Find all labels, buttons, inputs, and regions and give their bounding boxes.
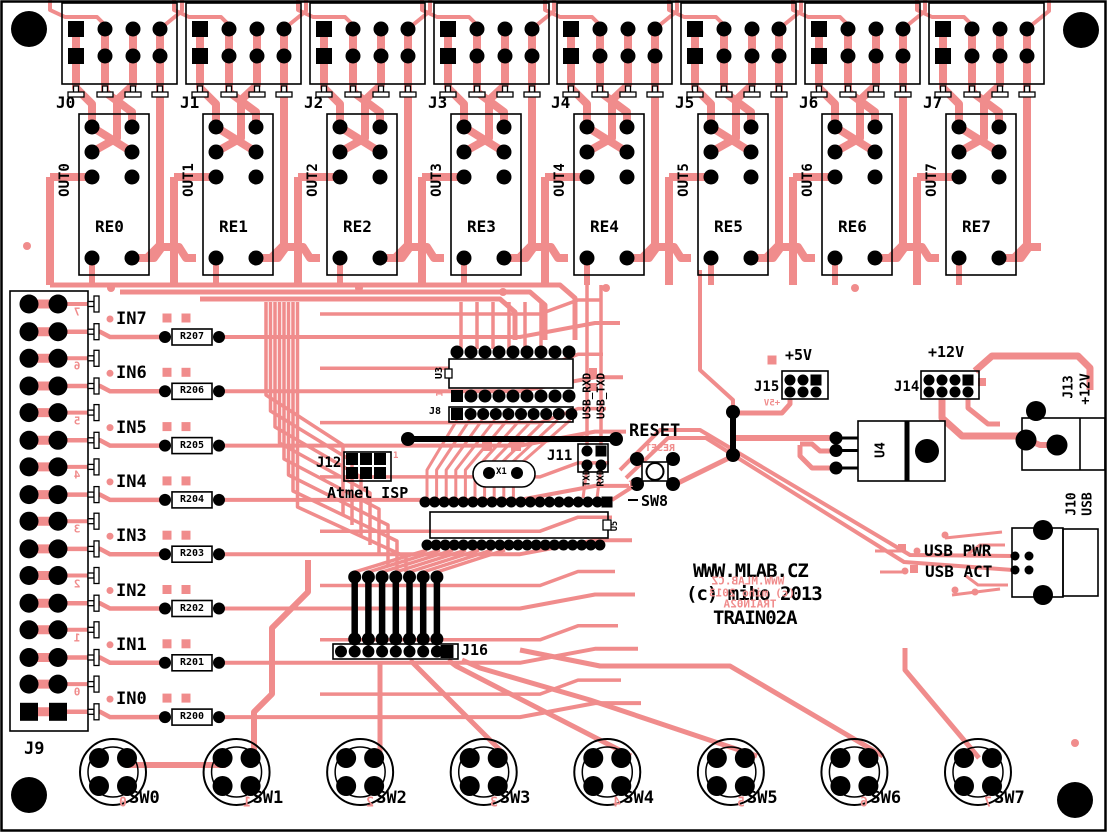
rxd-label: RXD bbox=[596, 469, 606, 486]
j14-label: J14 bbox=[894, 380, 919, 394]
j16-label: J16 bbox=[461, 643, 488, 658]
resistor-label-3: R204 bbox=[180, 495, 204, 505]
resistor-label-6: R201 bbox=[180, 658, 204, 668]
plus5v-label: +5V bbox=[785, 348, 812, 363]
switch-digit-1: 1 bbox=[243, 797, 251, 810]
pcb-board-train02a: J9 U3 1 J8 USB_RXD USB_TXD J11 TXD RXD X… bbox=[0, 0, 1107, 832]
input-label-0: IN7 bbox=[116, 311, 147, 328]
x1-label: X1 bbox=[496, 468, 507, 477]
input-label-3: IN4 bbox=[116, 474, 147, 491]
relay-label-re0: RE0 bbox=[95, 219, 124, 235]
switch-label-sw4: SW4 bbox=[623, 790, 654, 807]
usb-act-label: USB ACT bbox=[925, 564, 992, 580]
switch-digit-0: 0 bbox=[119, 797, 127, 810]
u3-label: U3 bbox=[435, 367, 445, 379]
input-label-2: IN5 bbox=[116, 420, 147, 437]
reset-pin1-marker: 1 bbox=[628, 481, 633, 490]
title-url-mirror: WWW.MLAB.CZ bbox=[712, 576, 785, 587]
u3-pin1-marker: 1 bbox=[437, 391, 446, 396]
j9-pin-digit-1: 6 bbox=[74, 361, 81, 372]
j11-label: J11 bbox=[547, 449, 572, 463]
j8-label: J8 bbox=[429, 407, 441, 417]
plus12v-label: +12V bbox=[928, 345, 964, 360]
switch-digit-7: 7 bbox=[984, 797, 992, 810]
connector-label-j6: J6 bbox=[799, 95, 818, 111]
switch-label-sw7: SW7 bbox=[994, 790, 1025, 807]
switch-digit-5: 5 bbox=[737, 797, 745, 810]
connector-label-j5: J5 bbox=[675, 95, 694, 111]
plus5v-mirror-label: +5V bbox=[764, 400, 780, 409]
connector-label-j3: J3 bbox=[428, 95, 447, 111]
switch-label-sw2: SW2 bbox=[376, 790, 407, 807]
usb-pwr-label: USB PWR bbox=[924, 543, 991, 559]
input-label-1: IN6 bbox=[116, 365, 147, 382]
j9-pin-digit-3: 4 bbox=[74, 469, 81, 480]
j13-label: J13 bbox=[1063, 375, 1076, 398]
u5-label: U5 bbox=[611, 521, 620, 531]
j10-label: J10 bbox=[1066, 492, 1079, 515]
out-label-0: OUT0 bbox=[58, 163, 72, 197]
j9-pin-digit-0: 7 bbox=[74, 307, 81, 318]
out-label-7: OUT7 bbox=[925, 163, 939, 197]
relay-label-re5: RE5 bbox=[714, 219, 743, 235]
out-label-3: OUT3 bbox=[430, 163, 444, 197]
resistor-label-5: R202 bbox=[180, 604, 204, 614]
out-label-1: OUT1 bbox=[182, 163, 196, 197]
resistor-label-0: R207 bbox=[180, 332, 204, 342]
j9-pin-digit-5: 2 bbox=[74, 578, 81, 589]
input-label-6: IN1 bbox=[116, 637, 147, 654]
relay-label-re1: RE1 bbox=[219, 219, 248, 235]
connector-label-j7: J7 bbox=[923, 95, 942, 111]
connector-label-j4: J4 bbox=[551, 95, 570, 111]
relay-label-re3: RE3 bbox=[467, 219, 496, 235]
switch-digit-4: 4 bbox=[613, 797, 621, 810]
input-label-7: IN0 bbox=[116, 691, 147, 708]
switch-label-sw1: SW1 bbox=[253, 790, 284, 807]
switch-digit-3: 3 bbox=[490, 797, 498, 810]
usb-rxd-label: USB_RXD bbox=[582, 373, 593, 419]
title-board-name-mirror: TRAIN02A bbox=[724, 599, 777, 610]
u4-label: U4 bbox=[875, 442, 888, 458]
sw8-label: SW8 bbox=[641, 494, 668, 509]
j15-label: J15 bbox=[754, 380, 779, 394]
switch-label-sw5: SW5 bbox=[747, 790, 778, 807]
input-label-5: IN2 bbox=[116, 583, 147, 600]
resistor-label-7: R200 bbox=[180, 712, 204, 722]
j9-pin-digit-6: 1 bbox=[74, 632, 81, 643]
relay-label-re2: RE2 bbox=[343, 219, 372, 235]
resistor-label-1: R206 bbox=[180, 386, 204, 396]
out-label-4: OUT4 bbox=[553, 163, 567, 197]
out-label-5: OUT5 bbox=[677, 163, 691, 197]
switch-digit-2: 2 bbox=[366, 797, 374, 810]
j9-pin-digit-4: 3 bbox=[74, 524, 81, 535]
j9-pin-digit-7: 0 bbox=[74, 687, 81, 698]
switch-digit-6: 6 bbox=[860, 797, 868, 810]
switch-label-sw0: SW0 bbox=[129, 790, 160, 807]
relay-label-re7: RE7 bbox=[962, 219, 991, 235]
reset-label: RESET bbox=[629, 423, 680, 440]
input-label-4: IN3 bbox=[116, 528, 147, 545]
relay-label-re6: RE6 bbox=[838, 219, 867, 235]
relay-label-re4: RE4 bbox=[590, 219, 619, 235]
resistor-label-2: R205 bbox=[180, 441, 204, 451]
silkscreen-labels: J9 U3 1 J8 USB_RXD USB_TXD J11 TXD RXD X… bbox=[0, 0, 1107, 832]
switch-label-sw3: SW3 bbox=[500, 790, 531, 807]
txd-label: TXD bbox=[582, 469, 592, 486]
j13-voltage-label: +12V bbox=[1080, 373, 1093, 404]
connector-label-j0: J0 bbox=[56, 95, 75, 111]
reset-mirror-label: RESET bbox=[645, 444, 675, 454]
j9-pin-digit-2: 5 bbox=[74, 415, 81, 426]
j10-type-label: USB bbox=[1082, 492, 1095, 515]
resistor-label-4: R203 bbox=[180, 549, 204, 559]
usb-txd-label: USB_TXD bbox=[596, 373, 607, 419]
j12-label: J12 bbox=[316, 456, 341, 470]
out-label-6: OUT6 bbox=[801, 163, 815, 197]
j12-pin1-marker: 1 bbox=[393, 452, 398, 461]
atmel-isp-label: Atmel ISP bbox=[327, 486, 408, 501]
j9-label: J9 bbox=[24, 741, 44, 758]
title-board-name: TRAIN02A bbox=[713, 609, 797, 628]
switch-label-sw6: SW6 bbox=[870, 790, 901, 807]
connector-label-j2: J2 bbox=[304, 95, 323, 111]
connector-label-j1: J1 bbox=[180, 95, 199, 111]
out-label-2: OUT2 bbox=[306, 163, 320, 197]
